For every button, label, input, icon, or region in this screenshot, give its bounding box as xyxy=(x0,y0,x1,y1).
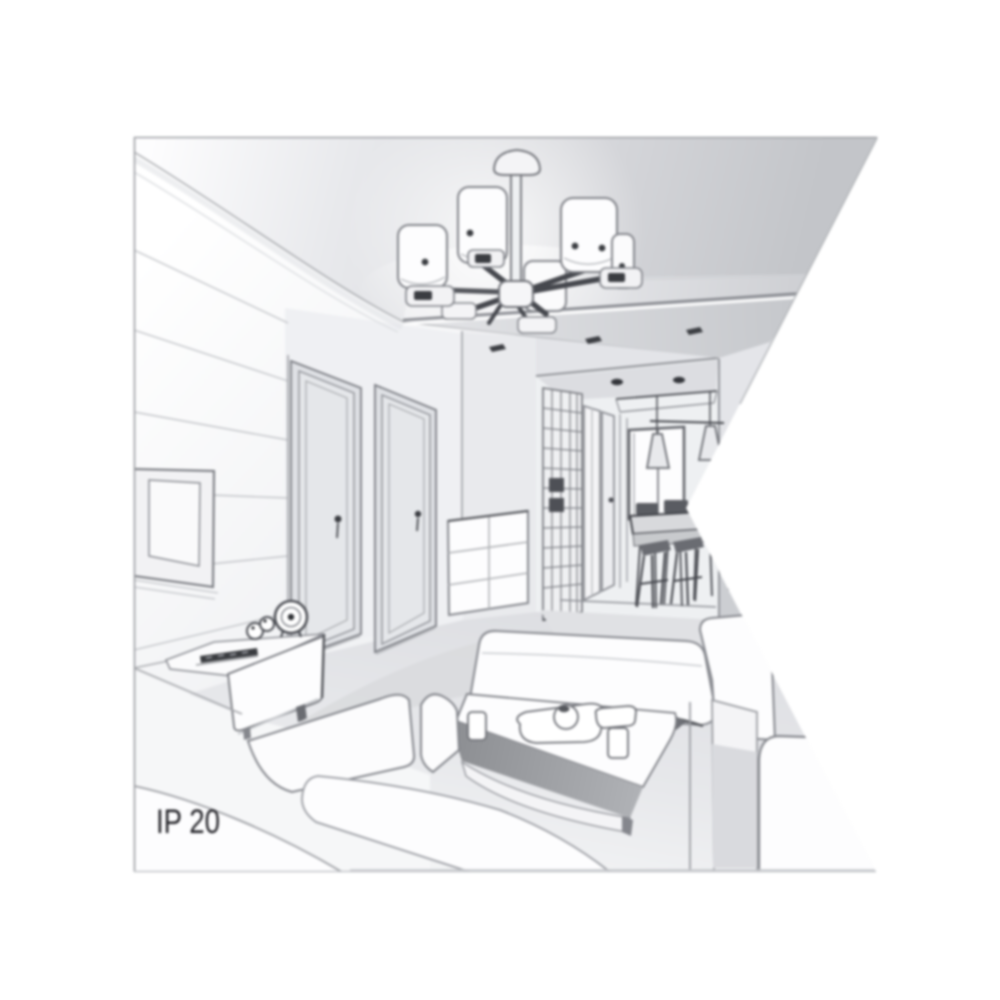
svg-text:IP 20: IP 20 xyxy=(156,803,220,841)
